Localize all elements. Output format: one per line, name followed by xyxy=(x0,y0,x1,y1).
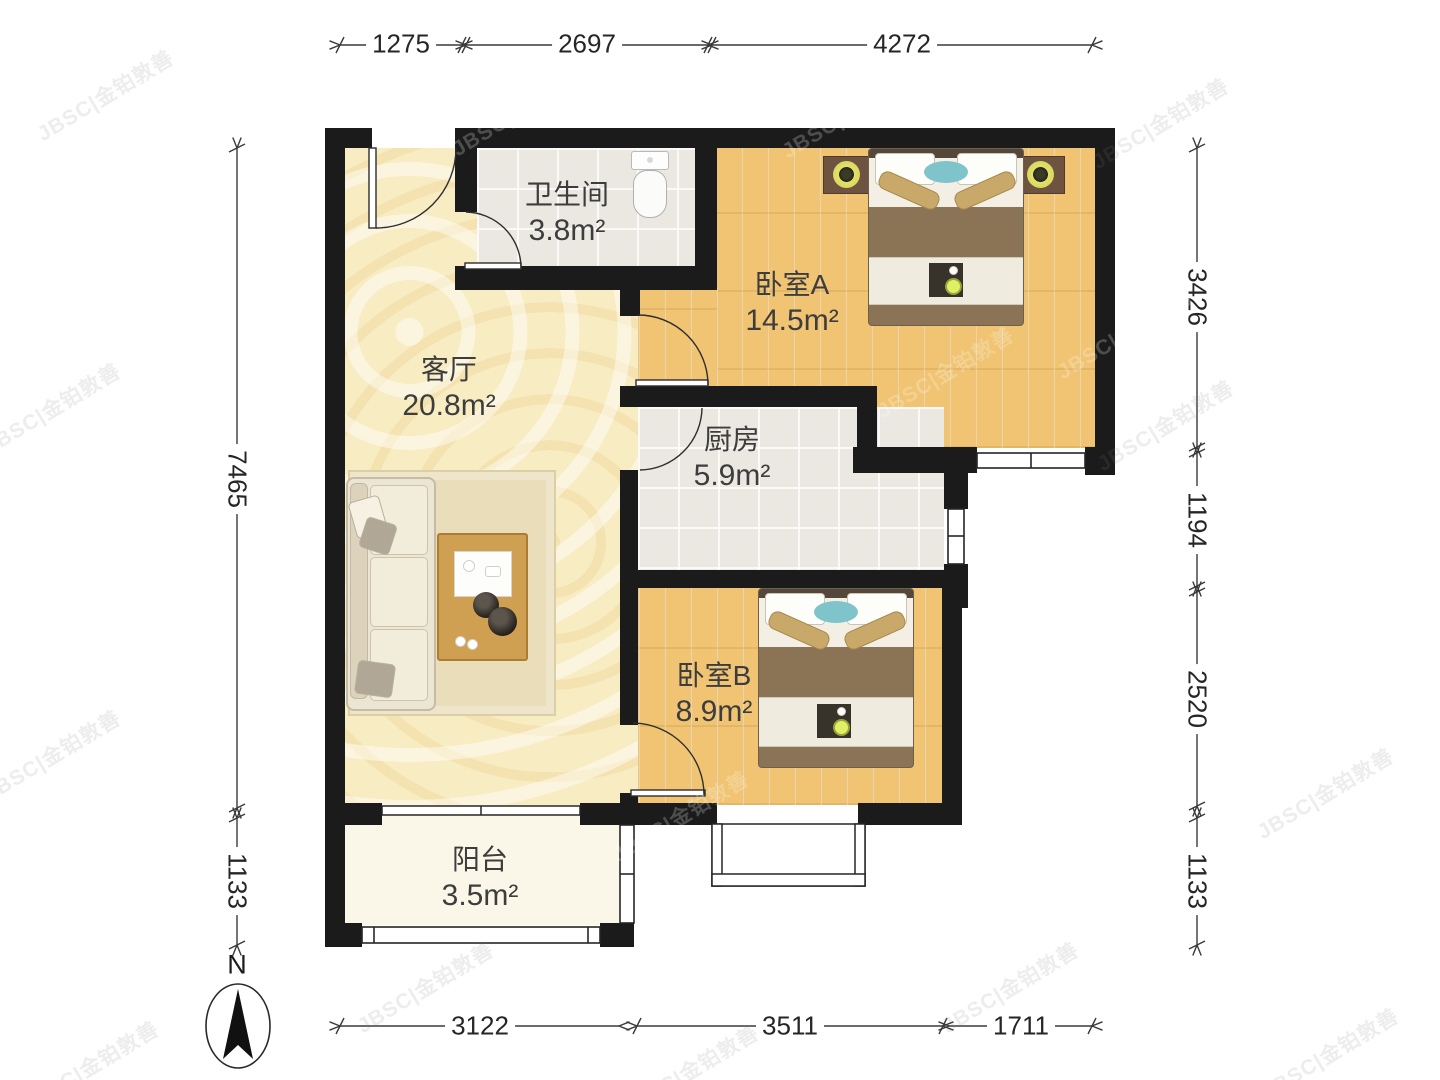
wall xyxy=(325,128,345,947)
cup xyxy=(488,607,517,636)
sofa-pillow xyxy=(354,660,396,699)
watermark: JBSC|金铂敦善 xyxy=(16,1013,164,1080)
room-label-living-room: 客厅 20.8m² xyxy=(402,352,495,425)
dim-top-3: 4272 xyxy=(867,29,937,60)
dim-top-1: 1275 xyxy=(366,29,436,60)
watermark: JBSC|金铂敦善 xyxy=(0,702,126,807)
dim-right-1: 3426 xyxy=(1182,262,1213,332)
wall xyxy=(455,128,1115,148)
wall xyxy=(942,588,962,825)
dim-right-2: 1194 xyxy=(1182,486,1213,554)
table-tray xyxy=(454,551,512,597)
watermark: JBSC|金铂敦善 xyxy=(31,42,179,147)
room-label-balcony: 阳台 3.5m² xyxy=(442,842,519,915)
wall xyxy=(455,148,477,212)
small-dish xyxy=(455,636,466,647)
room-label-bedroom-b: 卧室B 8.9m² xyxy=(676,658,753,731)
wall xyxy=(600,923,634,947)
dim-right-4: 1133 xyxy=(1182,847,1213,915)
kitchen-window xyxy=(948,509,964,564)
wall xyxy=(345,803,382,825)
wall xyxy=(342,923,362,947)
watermark: JBSC|金铂敦善 xyxy=(616,1017,764,1080)
wall xyxy=(620,386,877,407)
compass-icon xyxy=(206,984,270,1068)
bedroom-a-entry-floor xyxy=(638,288,718,388)
small-dish xyxy=(467,639,478,650)
dim-left-2: 1133 xyxy=(222,847,253,915)
wall xyxy=(944,464,968,509)
wall xyxy=(858,803,962,825)
dim-bottom-2: 3511 xyxy=(756,1011,824,1042)
watermark: JBSC|金铂敦善 xyxy=(1256,1000,1404,1080)
dim-right-3: 2520 xyxy=(1182,664,1213,734)
toilet-tank xyxy=(631,151,669,170)
dim-bottom-1: 3122 xyxy=(445,1011,515,1042)
wall xyxy=(620,570,962,588)
dim-bottom-3: 1711 xyxy=(987,1011,1055,1042)
bedroom-a-window xyxy=(977,453,1085,468)
wall xyxy=(580,803,717,825)
compass-north-label: N xyxy=(227,950,247,981)
double-bed-b xyxy=(758,588,914,768)
nightstand xyxy=(823,156,870,194)
room-label-kitchen: 厨房 5.9m² xyxy=(694,422,771,495)
wall xyxy=(1085,447,1115,475)
lamp xyxy=(833,161,860,188)
room-label-bathroom: 卫生间 3.8m² xyxy=(525,177,609,250)
dim-top-2: 2697 xyxy=(552,29,622,60)
watermark: JBSC|金铂敦善 xyxy=(1251,740,1399,845)
room-label-bedroom-a: 卧室A 14.5m² xyxy=(745,267,838,340)
bedroom-b-bay-window xyxy=(712,824,865,886)
wall xyxy=(455,266,717,290)
kitchen-floor xyxy=(638,407,944,572)
wall xyxy=(620,588,638,725)
watermark: JBSC|金铂敦善 xyxy=(0,355,126,460)
toilet-bowl xyxy=(633,170,667,218)
sofa-seat xyxy=(370,557,428,627)
wall xyxy=(695,148,717,288)
dim-left-1: 7465 xyxy=(222,444,253,514)
wall xyxy=(620,288,640,316)
wall xyxy=(1095,128,1115,475)
lamp xyxy=(1027,161,1054,188)
floor-plan: 卫生间 3.8m² 卧室A 14.5m² 客厅 20.8m² 厨房 5.9m² … xyxy=(0,0,1440,1080)
double-bed-a xyxy=(868,148,1024,326)
coffee-table xyxy=(437,533,528,661)
